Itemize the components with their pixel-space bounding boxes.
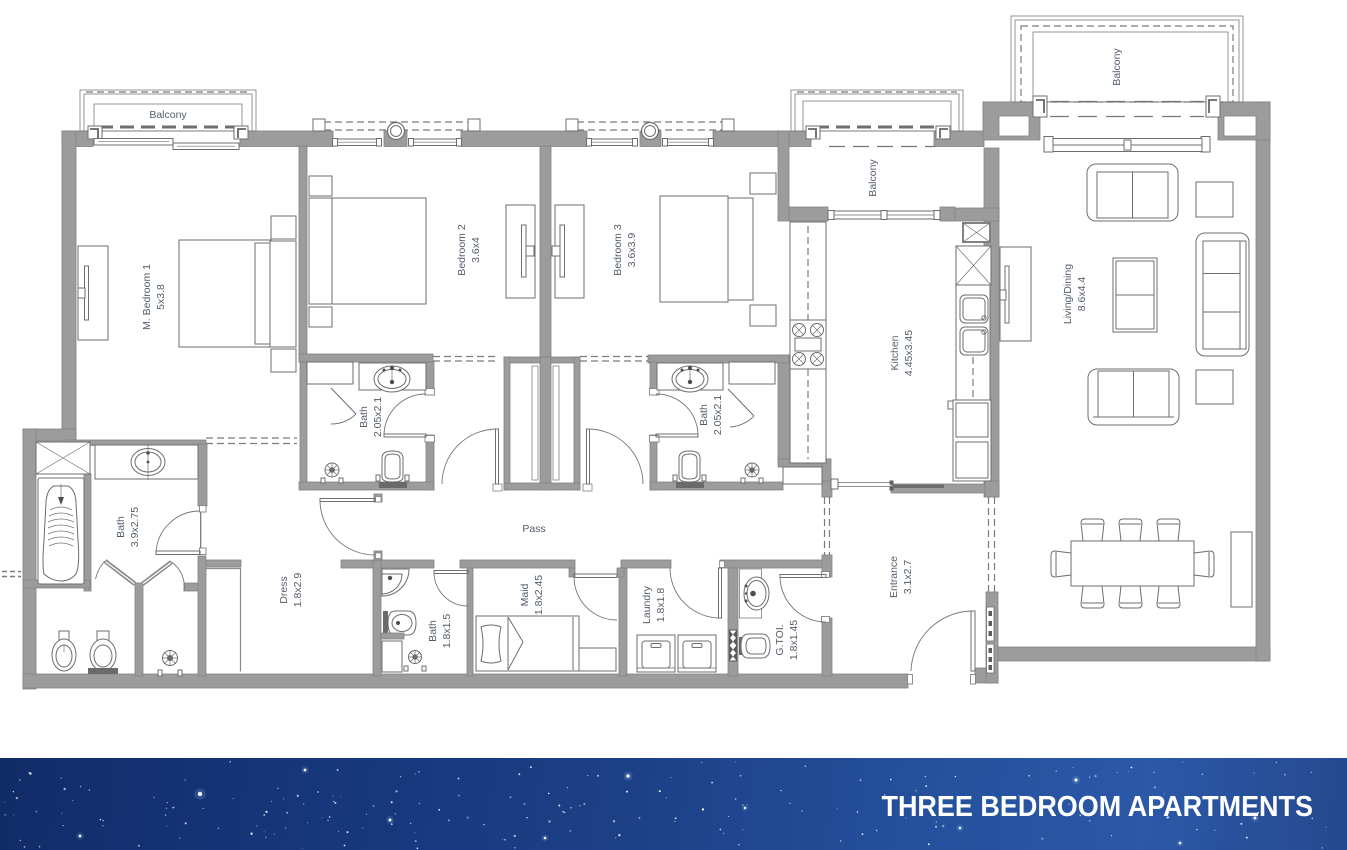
svg-text:3.6x4: 3.6x4 <box>470 237 482 263</box>
svg-text:1.8x2.45: 1.8x2.45 <box>533 575 545 615</box>
svg-text:4.45x3.45: 4.45x3.45 <box>903 330 915 376</box>
svg-text:3.1x2.7: 3.1x2.7 <box>902 560 914 595</box>
svg-text:1.8x2.9: 1.8x2.9 <box>292 573 304 608</box>
svg-text:Maid: Maid <box>519 583 531 606</box>
svg-text:Entrance: Entrance <box>888 556 900 598</box>
svg-text:1.8x1.8: 1.8x1.8 <box>655 588 667 623</box>
svg-text:Balcony: Balcony <box>867 159 879 197</box>
svg-text:8.6x4.4: 8.6x4.4 <box>1076 277 1088 312</box>
svg-text:G.TOI.: G.TOI. <box>774 624 786 655</box>
svg-text:Laundry: Laundry <box>641 585 653 624</box>
svg-text:2.05x2.1: 2.05x2.1 <box>372 397 384 437</box>
svg-text:Bedroom 3: Bedroom 3 <box>612 224 624 276</box>
svg-text:Bedroom 2: Bedroom 2 <box>456 224 468 276</box>
svg-text:Balcony: Balcony <box>1111 48 1123 86</box>
svg-text:Living/Dining: Living/Dining <box>1062 264 1074 324</box>
svg-text:1.8x1.45: 1.8x1.45 <box>788 620 800 660</box>
svg-text:Bath: Bath <box>427 620 439 642</box>
svg-text:1.8x1.5: 1.8x1.5 <box>441 614 453 649</box>
svg-text:Kitchen: Kitchen <box>889 335 901 370</box>
svg-text:3.6x3.9: 3.6x3.9 <box>626 233 638 268</box>
svg-text:Bath: Bath <box>115 516 127 538</box>
svg-text:5x3.8: 5x3.8 <box>155 284 167 310</box>
svg-text:Bath: Bath <box>358 406 370 428</box>
svg-text:Pass: Pass <box>522 523 545 535</box>
svg-text:Bath: Bath <box>698 404 710 426</box>
svg-text:Balcony: Balcony <box>149 109 187 121</box>
svg-text:Dress: Dress <box>278 576 290 603</box>
svg-text:M. Bedroom 1: M. Bedroom 1 <box>141 264 153 330</box>
svg-text:3.9x2.75: 3.9x2.75 <box>129 507 141 547</box>
svg-text:2.05x2.1: 2.05x2.1 <box>712 395 724 435</box>
